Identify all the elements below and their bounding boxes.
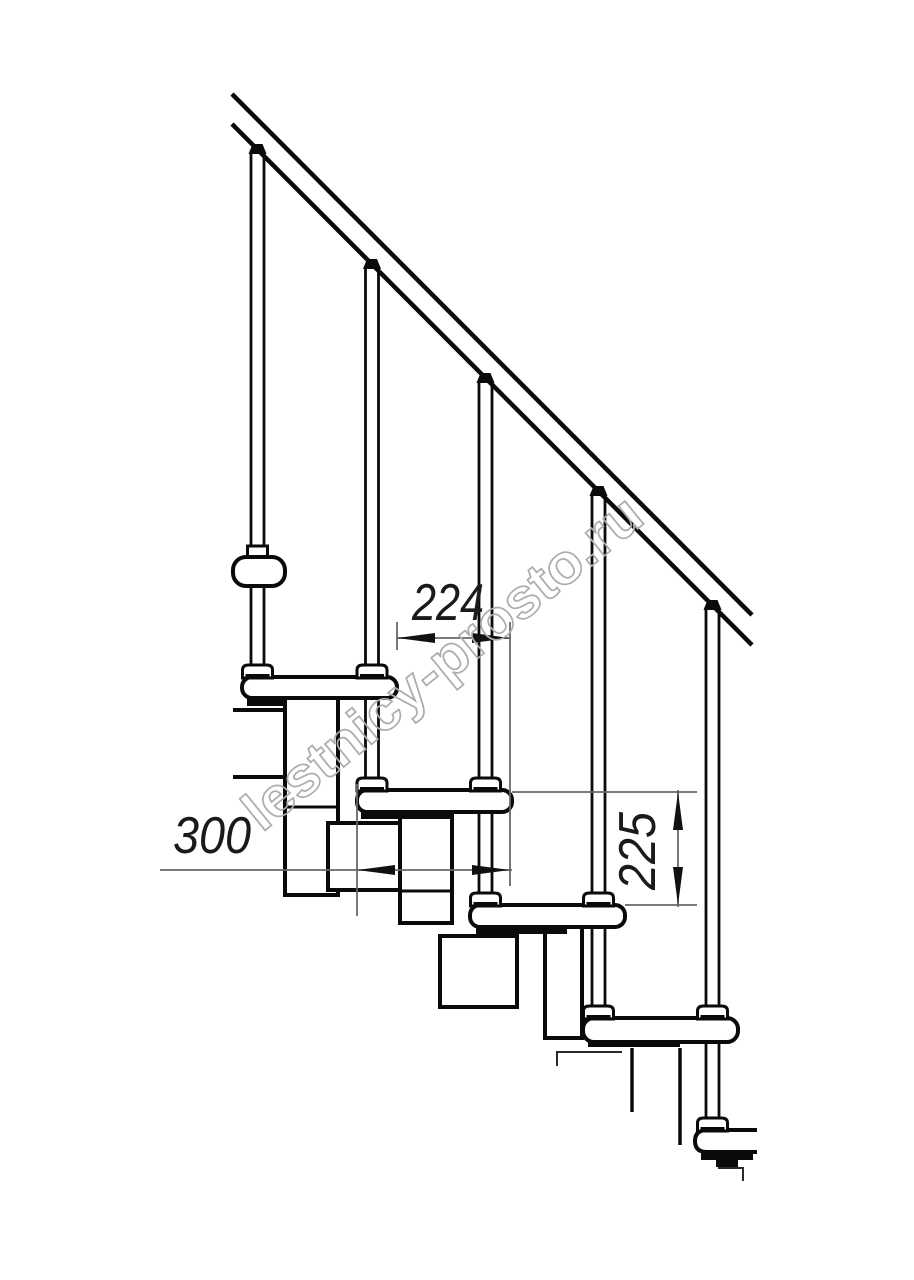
tread-5-mount-tab [701, 1152, 753, 1160]
clamp-bracket [233, 557, 285, 586]
tread-5-mount-step [716, 1160, 738, 1167]
tread-4 [583, 1018, 738, 1042]
collar-base [474, 787, 498, 791]
tread-3 [470, 905, 625, 927]
dimension-depth-label: 300 [173, 807, 251, 865]
spine-neck-3 [545, 927, 582, 1038]
spine-neck-2 [400, 812, 452, 923]
arrow-down [673, 867, 683, 905]
collar-base [360, 787, 384, 791]
baluster-1 [251, 152, 264, 666]
tread-5-partial [695, 1130, 757, 1152]
collar-base [474, 902, 498, 906]
arrow-up [673, 792, 683, 830]
tread-4-mount-tab [588, 1040, 680, 1047]
collar-base [587, 902, 611, 906]
tread-2 [357, 790, 512, 812]
break-line-right [718, 1168, 743, 1181]
staircase-technical-drawing: 224 300 225 lestnicy-prosto.ru [0, 0, 914, 1280]
spine-module-3 [440, 936, 517, 1007]
collar-base [587, 1015, 611, 1019]
baluster-1-clamp [233, 546, 285, 586]
collar-base [701, 1015, 725, 1019]
collar-base [246, 674, 270, 678]
spine-module-2 [328, 823, 403, 890]
dimension-riser-label: 225 [609, 811, 667, 891]
tread-2-mount-tab [361, 812, 452, 819]
collar-base [701, 1127, 725, 1131]
tread-1-mount-tab [247, 697, 284, 706]
tread-3-mount-tab [476, 927, 567, 934]
break-line-left [557, 1052, 622, 1066]
drawing-svg: 224 300 225 lestnicy-prosto.ru [0, 0, 914, 1280]
